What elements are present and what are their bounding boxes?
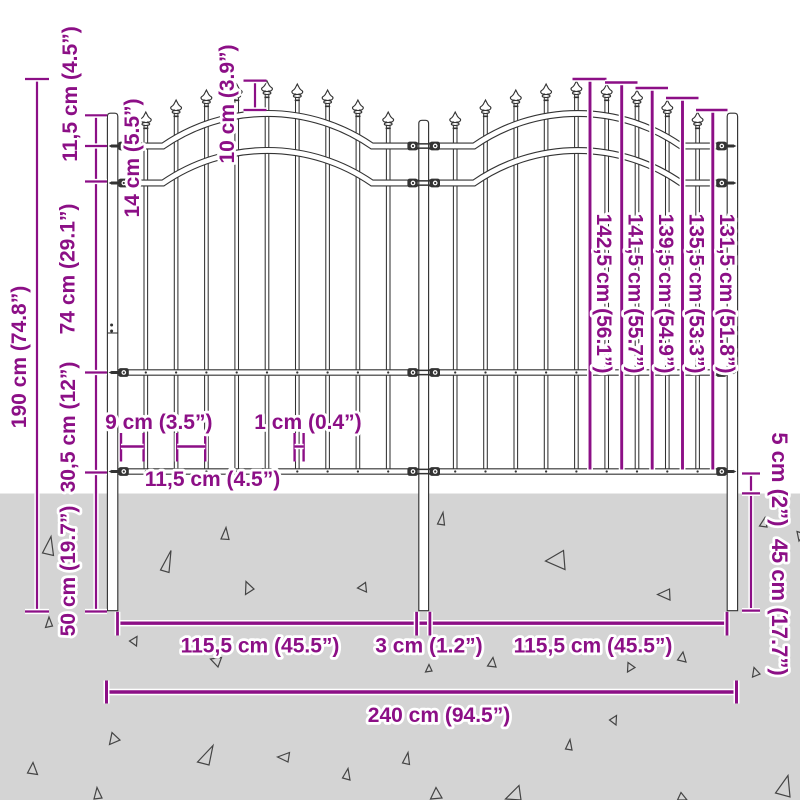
svg-text:10 cm (3.9”): 10 cm (3.9”) — [216, 44, 239, 163]
svg-text:5 cm (2”) 45 cm (17.7”): 5 cm (2”) 45 cm (17.7”) — [767, 432, 792, 675]
svg-text:141,5 cm (55.7”): 141,5 cm (55.7”) — [624, 214, 647, 374]
svg-text:3 cm (1.2”): 3 cm (1.2”) — [375, 635, 482, 658]
svg-text:50 cm (19.7”): 50 cm (19.7”) — [57, 506, 80, 637]
svg-text:115,5 cm (45.5”): 115,5 cm (45.5”) — [181, 635, 340, 658]
svg-text:131,5 cm (51.8”): 131,5 cm (51.8”) — [715, 214, 738, 374]
svg-text:11,5 cm (4.5”): 11,5 cm (4.5”) — [145, 468, 280, 491]
svg-text:139,5 cm (54.9”): 139,5 cm (54.9”) — [654, 214, 677, 374]
svg-text:14 cm (5.5”): 14 cm (5.5”) — [121, 98, 144, 217]
svg-text:142,5 cm (56.1”): 142,5 cm (56.1”) — [592, 214, 615, 374]
svg-text:240 cm (94.5”): 240 cm (94.5”) — [368, 704, 510, 727]
svg-text:115,5 cm (45.5”): 115,5 cm (45.5”) — [514, 635, 673, 658]
svg-text:74 cm (29.1”): 74 cm (29.1”) — [57, 204, 80, 335]
svg-text:190 cm (74.8”): 190 cm (74.8”) — [8, 286, 31, 428]
svg-text:9 cm (3.5”): 9 cm (3.5”) — [105, 411, 212, 434]
svg-text:1 cm (0.4”): 1 cm (0.4”) — [254, 411, 361, 434]
svg-text:30,5 cm (12”): 30,5 cm (12”) — [57, 362, 80, 493]
svg-text:135,5 cm (53.3”): 135,5 cm (53.3”) — [685, 214, 708, 374]
svg-text:11,5 cm (4.5”): 11,5 cm (4.5”) — [59, 26, 82, 161]
